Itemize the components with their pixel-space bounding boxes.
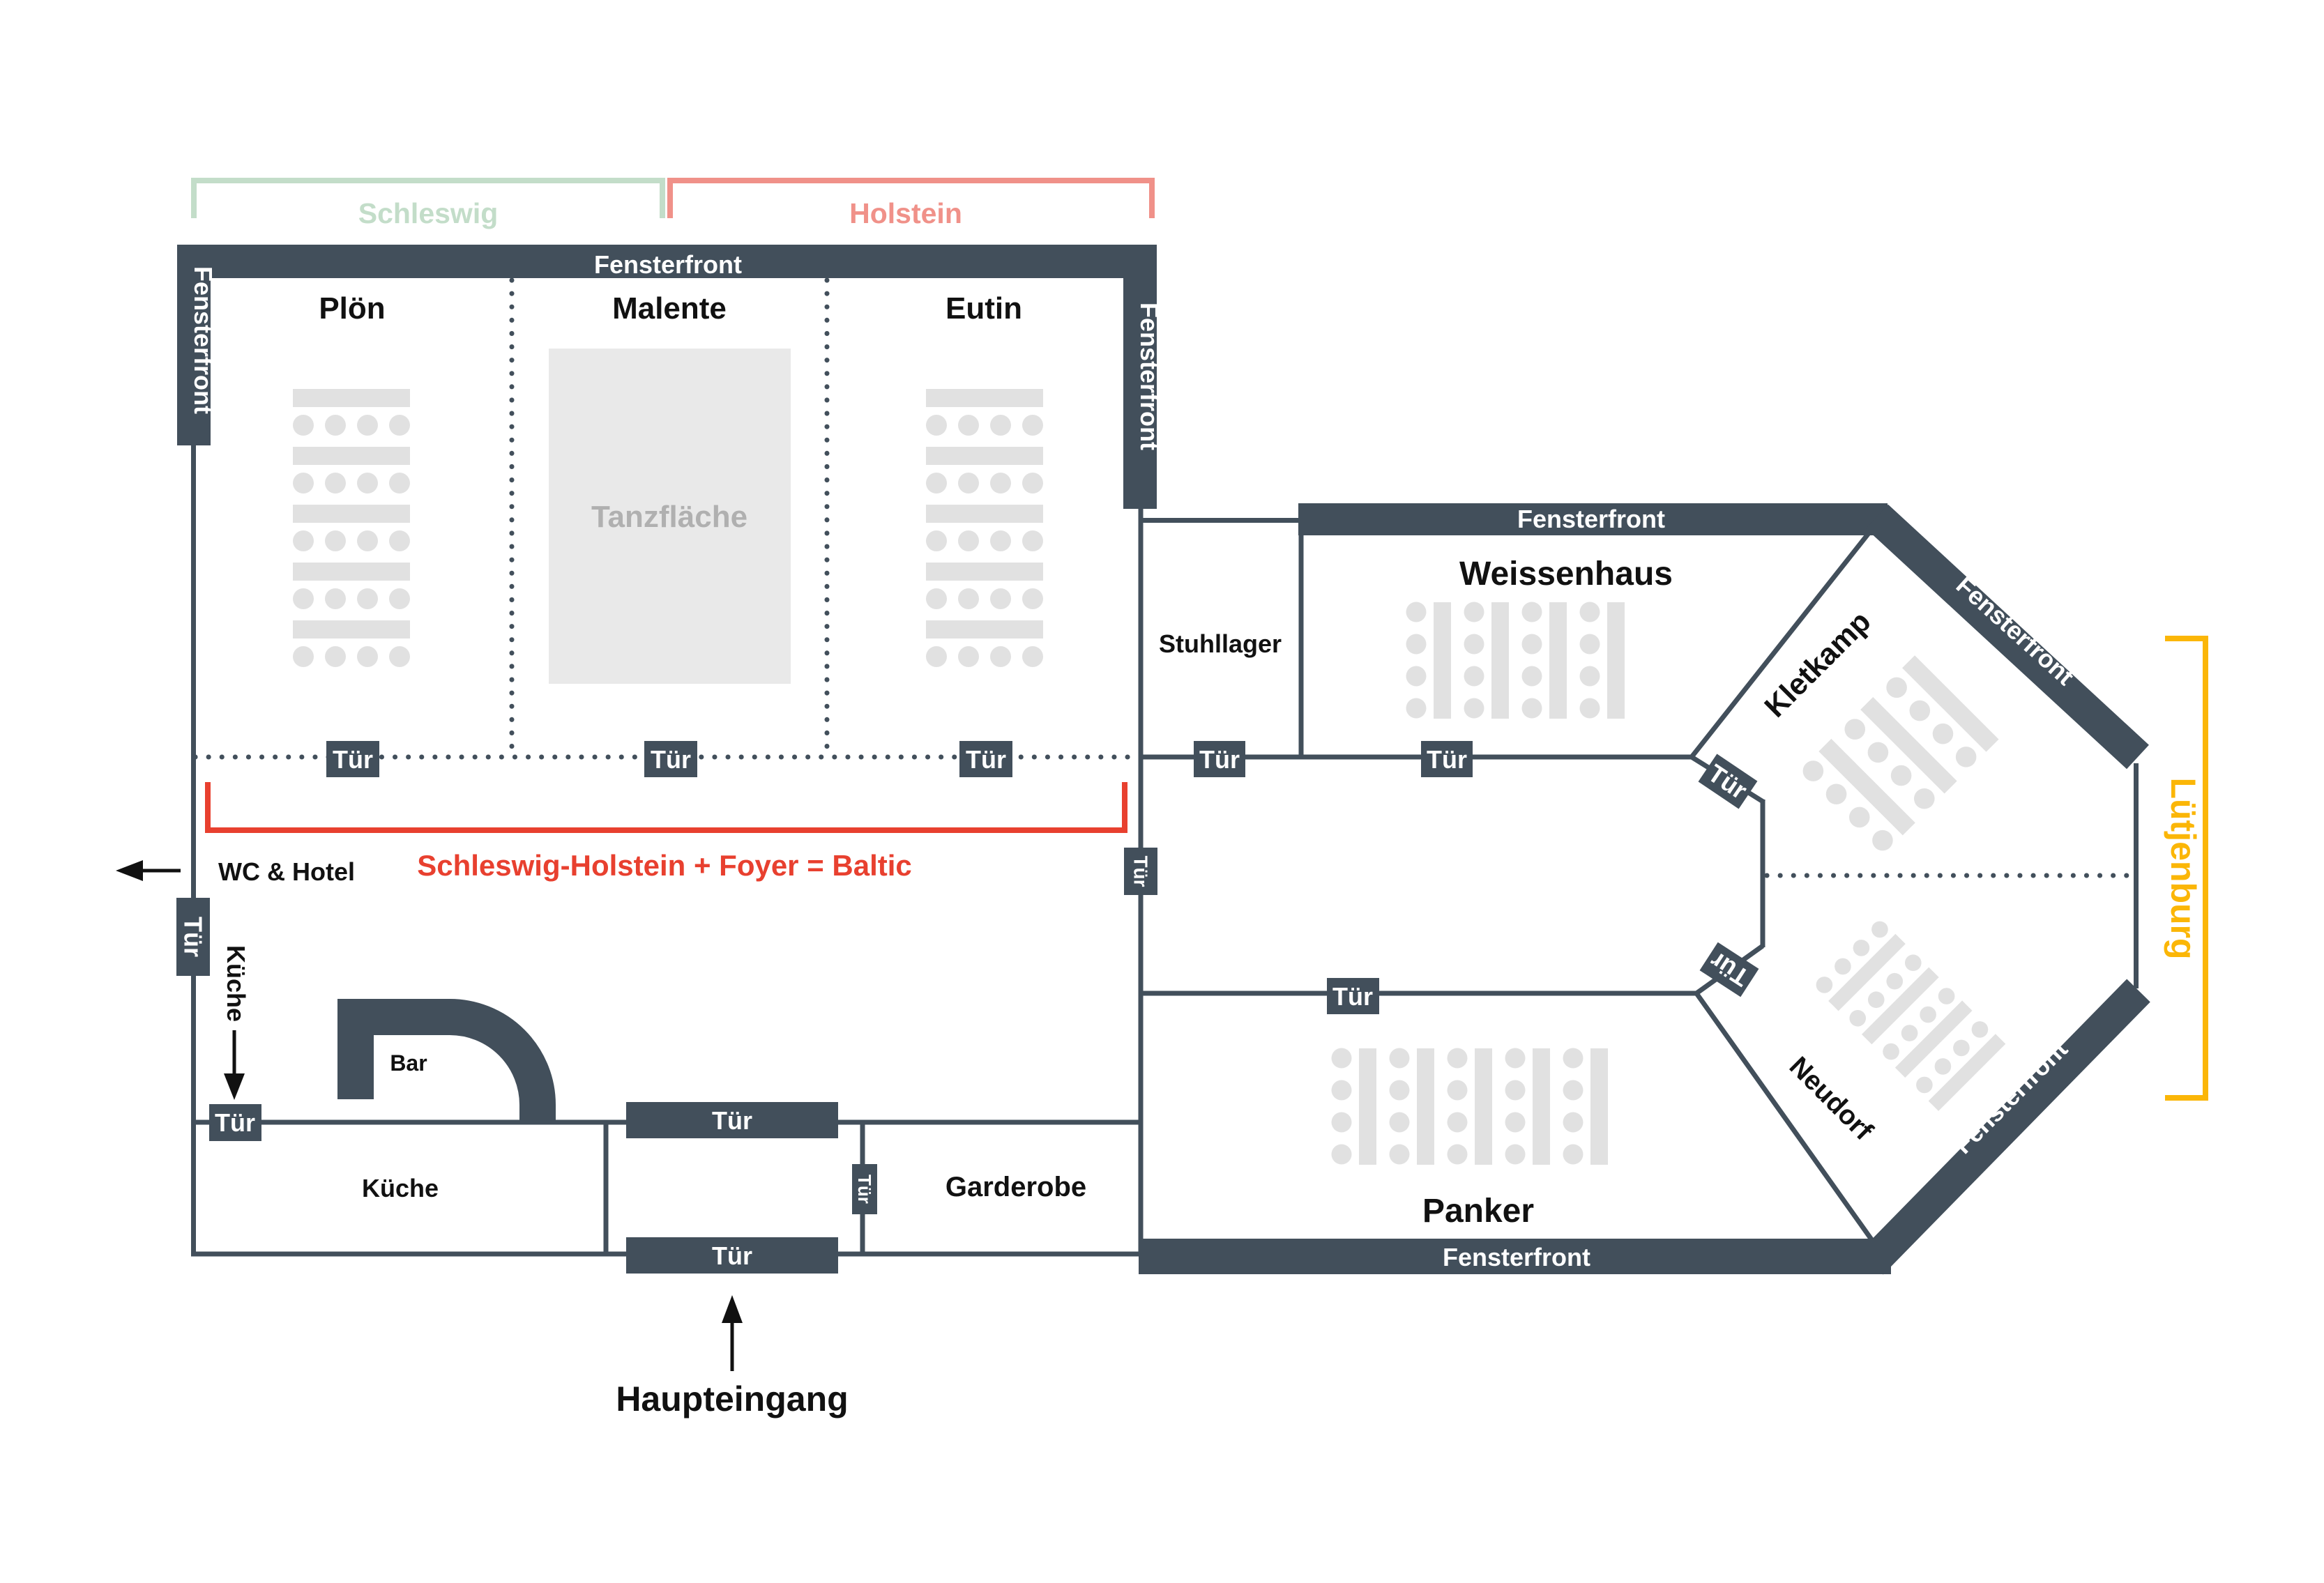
svg-text:Tür: Tür <box>1332 982 1373 1011</box>
svg-text:Panker: Panker <box>1422 1193 1534 1230</box>
svg-text:Tür: Tür <box>333 745 373 774</box>
svg-text:Tür: Tür <box>1130 855 1152 887</box>
svg-text:Malente: Malente <box>612 291 727 326</box>
svg-text:Schleswig-Holstein + Foyer = B: Schleswig-Holstein + Foyer = Baltic <box>417 849 912 882</box>
svg-text:Tür: Tür <box>966 745 1006 774</box>
svg-text:Tanzfläche: Tanzfläche <box>591 500 747 534</box>
svg-text:Tür: Tür <box>215 1108 255 1137</box>
svg-text:Eutin: Eutin <box>945 291 1022 326</box>
svg-text:Tür: Tür <box>179 917 208 957</box>
svg-text:Kletkamp: Kletkamp <box>1759 605 1878 724</box>
svg-text:Tür: Tür <box>712 1241 752 1270</box>
svg-text:Plön: Plön <box>319 291 385 326</box>
svg-text:Tür: Tür <box>651 745 691 774</box>
svg-text:Weissenhaus: Weissenhaus <box>1459 556 1673 592</box>
svg-text:Tür: Tür <box>1427 745 1467 774</box>
svg-text:Fensterfront: Fensterfront <box>1951 570 2080 690</box>
svg-text:Küche: Küche <box>222 945 250 1022</box>
svg-text:Schleswig: Schleswig <box>358 197 499 229</box>
svg-text:Stuhllager: Stuhllager <box>1159 629 1282 658</box>
svg-text:Bar: Bar <box>390 1050 427 1076</box>
svg-text:Tür: Tür <box>1199 745 1240 774</box>
svg-text:Küche: Küche <box>362 1174 439 1202</box>
svg-text:Fensterfront: Fensterfront <box>594 250 742 279</box>
svg-text:Fensterfront: Fensterfront <box>1517 505 1665 533</box>
svg-text:Tür: Tür <box>712 1106 752 1135</box>
svg-text:Tür: Tür <box>854 1175 875 1204</box>
svg-text:Fensterfront: Fensterfront <box>1443 1243 1590 1271</box>
svg-text:Garderobe: Garderobe <box>945 1172 1086 1202</box>
svg-text:Fensterfront: Fensterfront <box>189 266 218 414</box>
svg-text:Fensterfront: Fensterfront <box>1135 303 1164 450</box>
svg-text:Haupteingang: Haupteingang <box>616 1379 848 1418</box>
svg-text:WC & Hotel: WC & Hotel <box>218 857 355 886</box>
svg-text:Lütjenburg: Lütjenburg <box>2164 777 2203 959</box>
svg-text:Holstein: Holstein <box>849 197 962 229</box>
